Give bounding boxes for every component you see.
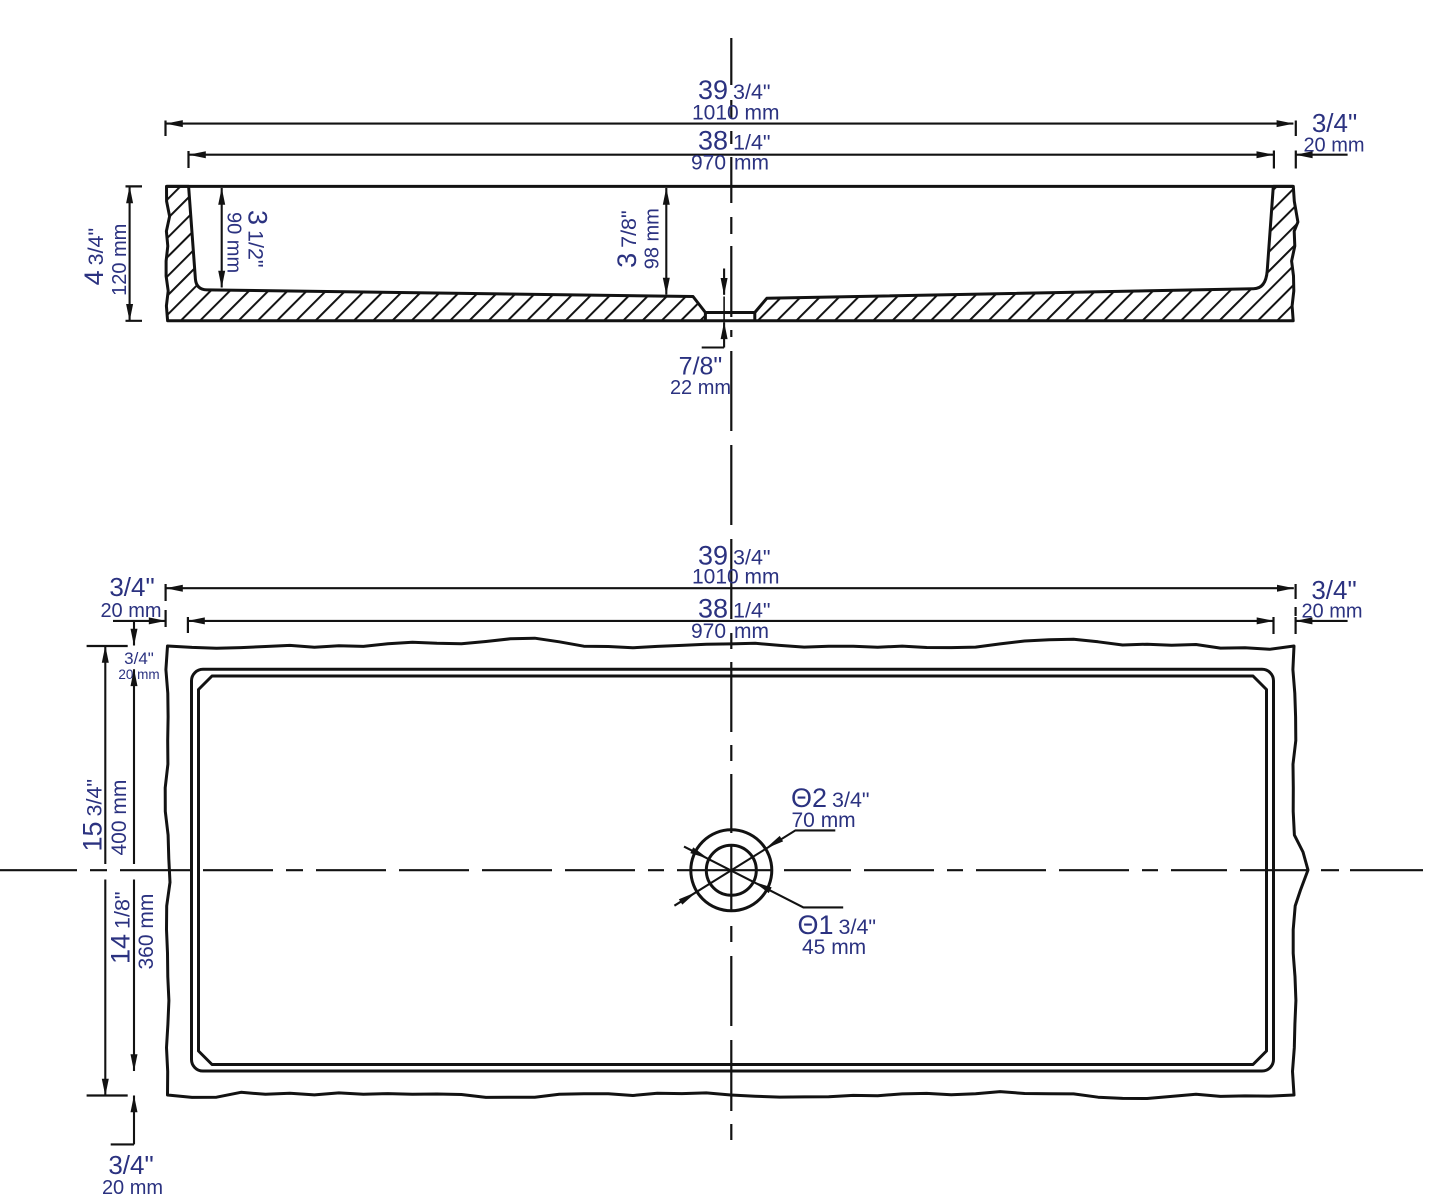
svg-text:3/4": 3/4" <box>124 649 154 668</box>
svg-text:360 mm: 360 mm <box>135 894 158 970</box>
svg-text:45 mm: 45 mm <box>802 936 866 959</box>
svg-text:90 mm: 90 mm <box>223 212 245 273</box>
svg-text:20 mm: 20 mm <box>118 667 159 682</box>
svg-text:70 mm: 70 mm <box>792 809 856 832</box>
svg-text:393/4": 393/4" <box>698 75 771 105</box>
svg-text:3/4": 3/4" <box>108 1150 153 1180</box>
svg-text:43/4": 43/4" <box>79 228 109 286</box>
svg-text:20 mm: 20 mm <box>102 1177 163 1199</box>
svg-text:153/4": 153/4" <box>77 779 107 852</box>
svg-text:120 mm: 120 mm <box>109 224 131 296</box>
svg-text:37/8": 37/8" <box>612 210 642 268</box>
svg-text:3/4": 3/4" <box>109 572 154 602</box>
svg-text:20 mm: 20 mm <box>1303 135 1364 157</box>
svg-text:400 mm: 400 mm <box>108 780 131 856</box>
svg-text:141/8": 141/8" <box>106 891 136 964</box>
svg-text:1010 mm: 1010 mm <box>692 102 780 125</box>
svg-text:31/2": 31/2" <box>243 210 273 268</box>
svg-text:22 mm: 22 mm <box>670 377 731 399</box>
svg-text:20 mm: 20 mm <box>1301 601 1362 623</box>
svg-text:381/4": 381/4" <box>698 594 771 624</box>
svg-text:1010 mm: 1010 mm <box>692 566 780 589</box>
svg-text:98 mm: 98 mm <box>641 208 663 269</box>
svg-text:3/4": 3/4" <box>1312 108 1357 138</box>
svg-text:20 mm: 20 mm <box>100 600 161 622</box>
